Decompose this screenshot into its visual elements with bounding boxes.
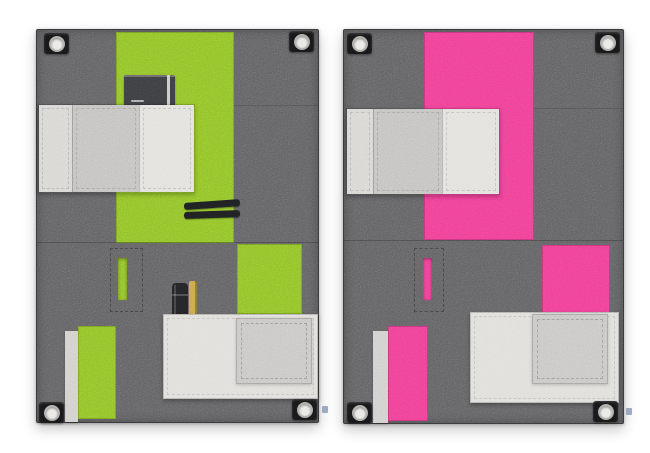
seam-line bbox=[534, 108, 623, 109]
pencil-shade-edge bbox=[195, 281, 197, 315]
eyelet-ring-icon bbox=[600, 35, 616, 51]
pink-felt-strip bbox=[388, 326, 428, 421]
eyelet-ring-icon bbox=[44, 405, 60, 421]
seam-line bbox=[344, 240, 623, 241]
eyelet-ring-icon bbox=[294, 34, 310, 50]
black-marker bbox=[172, 283, 188, 315]
corner-grommet bbox=[595, 32, 620, 53]
pocket-flap bbox=[236, 318, 312, 384]
pink-slot-opening bbox=[423, 258, 432, 300]
eyelet-ring-icon bbox=[598, 404, 614, 420]
pocket-flap bbox=[532, 314, 608, 384]
pocket-segment bbox=[39, 105, 72, 192]
eyelet-ring-icon bbox=[352, 405, 368, 421]
notebook-elastic-band bbox=[167, 75, 170, 107]
corner-grommet bbox=[289, 31, 314, 52]
felt-organizer-green bbox=[36, 29, 319, 423]
eyelet-ring-icon bbox=[49, 36, 65, 52]
corner-grommet bbox=[593, 401, 618, 422]
eyelet-ring-icon bbox=[352, 36, 368, 52]
glasses-temple bbox=[184, 210, 240, 219]
pink-felt-patch bbox=[542, 245, 610, 313]
corner-grommet bbox=[39, 402, 64, 423]
marker-highlight bbox=[174, 285, 176, 315]
notebook-label bbox=[131, 100, 144, 102]
grey-felt-strip bbox=[65, 331, 78, 422]
gold-pencil bbox=[189, 281, 197, 315]
pocket-segment bbox=[373, 109, 442, 194]
corner-grommet bbox=[347, 402, 372, 423]
pocket-segment bbox=[139, 105, 194, 192]
green-felt-strip bbox=[78, 326, 116, 419]
segmented-pocket bbox=[38, 104, 195, 193]
segmented-pocket bbox=[346, 108, 500, 195]
pocket-segment bbox=[347, 109, 373, 194]
product-photo-canvas bbox=[0, 0, 650, 453]
seam-line bbox=[37, 242, 318, 243]
felt-organizer-pink bbox=[343, 29, 624, 424]
corner-grommet bbox=[292, 399, 317, 420]
folded-glasses bbox=[184, 198, 240, 224]
notebook bbox=[124, 75, 175, 107]
green-slot-opening bbox=[118, 258, 127, 300]
corner-grommet bbox=[347, 33, 372, 54]
seam-line bbox=[234, 105, 318, 106]
green-felt-patch bbox=[237, 244, 302, 314]
corner-grommet bbox=[44, 33, 69, 54]
pocket-segment bbox=[442, 109, 499, 194]
watermark-icon bbox=[322, 406, 328, 413]
pocket-segment bbox=[72, 105, 139, 192]
eyelet-ring-icon bbox=[297, 402, 313, 418]
watermark-icon bbox=[626, 408, 632, 415]
glasses-temple bbox=[184, 199, 240, 210]
grey-felt-strip bbox=[373, 331, 388, 423]
